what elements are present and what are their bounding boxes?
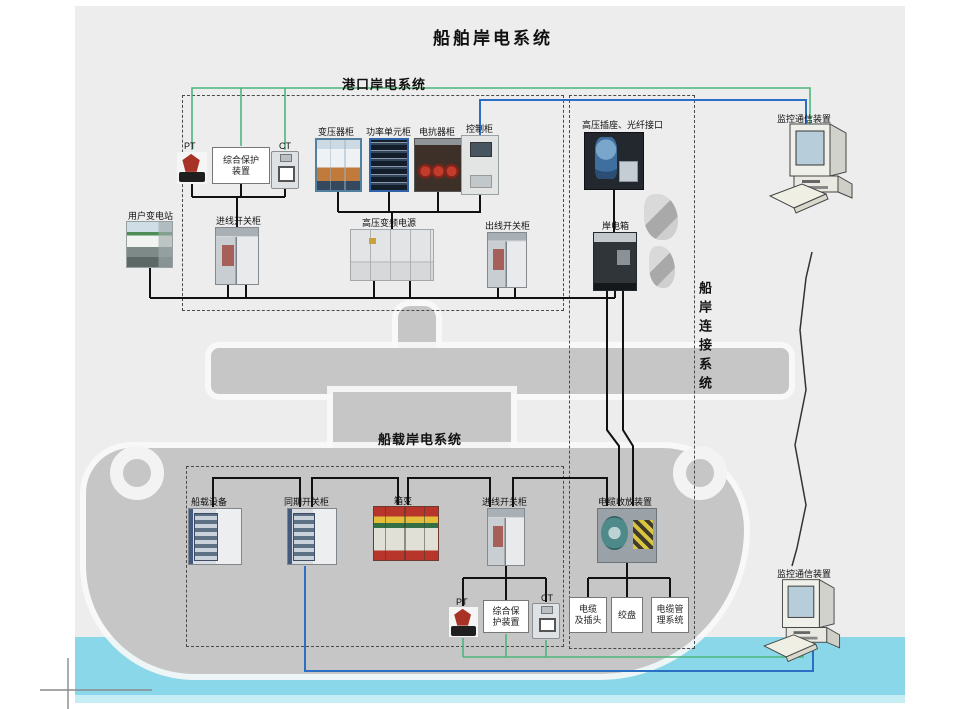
cable-mgmt-line2: 理系统 bbox=[656, 615, 683, 626]
ship-system-title: 船载岸电系统 bbox=[378, 429, 462, 448]
box-transformer-label: 箱变 bbox=[394, 496, 412, 506]
sync-switch-cabinet-label: 同期开关柜 bbox=[284, 497, 329, 507]
ship-incoming-switch-cabinet-image bbox=[487, 508, 525, 566]
cable-mgmt-line1: 电缆管 bbox=[656, 604, 683, 615]
winch-box: 绞盘 bbox=[611, 597, 643, 633]
protection-bottom-line1: 综合保 bbox=[492, 606, 519, 617]
connection-system-title: 船岸连接系统 bbox=[695, 281, 714, 395]
incoming-switch-cabinet-label: 进线开关柜 bbox=[216, 216, 261, 226]
hv-vfd-power-label: 高压变频电源 bbox=[362, 218, 416, 228]
reactor-cabinet-image bbox=[414, 138, 463, 192]
outgoing-switch-cabinet-label: 出线开关柜 bbox=[485, 221, 530, 231]
computer-icon bbox=[760, 576, 852, 668]
hv-socket-fiber-label: 高压插座、光纤接口 bbox=[582, 120, 663, 130]
protection-top-line2: 装置 bbox=[232, 166, 250, 177]
monitoring-computer-bottom bbox=[760, 576, 852, 673]
diagram-canvas: 船舶岸电系统 港口岸电系统 船载岸电系统 船岸连接系统 bbox=[0, 0, 968, 709]
hv-vfd-power-image bbox=[350, 229, 434, 281]
transformer-cabinet-label: 变压器柜 bbox=[318, 127, 354, 137]
cable-mgmt-box: 电缆管 理系统 bbox=[651, 597, 689, 633]
monitoring-device-bottom-label: 监控通信装置 bbox=[777, 569, 831, 579]
cable-reel-device-label: 电缆收放装置 bbox=[598, 497, 652, 507]
pt-bottom-image bbox=[449, 607, 478, 637]
protection-top-line1: 综合保护 bbox=[223, 155, 259, 166]
pt-bottom-label: PT bbox=[456, 597, 468, 607]
transformer-cabinet-image bbox=[315, 138, 362, 192]
winch-label: 绞盘 bbox=[618, 610, 636, 621]
shore-power-box-image bbox=[593, 232, 637, 291]
cable-plug-line1: 电缆 bbox=[579, 604, 597, 615]
ship-incoming-switch-cabinet-label: 进线开关柜 bbox=[482, 497, 527, 507]
shore-power-box-label: 岸电箱 bbox=[602, 221, 629, 231]
ct-bottom-label: CT bbox=[541, 593, 553, 603]
box-transformer-image bbox=[373, 506, 439, 561]
control-cabinet-label: 控制柜 bbox=[466, 124, 493, 134]
page-title: 船舶岸电系统 bbox=[433, 24, 553, 49]
hv-socket-fiber-image bbox=[584, 132, 644, 190]
pt-top-image bbox=[177, 152, 207, 184]
protection-device-bottom-box: 综合保 护装置 bbox=[483, 600, 529, 633]
protection-device-top-box: 综合保护 装置 bbox=[212, 147, 270, 184]
control-cabinet-image bbox=[461, 135, 499, 195]
ct-top-label: CT bbox=[279, 141, 291, 151]
cable-plug-line2: 及插头 bbox=[574, 615, 601, 626]
cable-plug-box: 电缆 及插头 bbox=[569, 597, 607, 633]
shipboard-equipment-image bbox=[188, 508, 242, 565]
incoming-switch-cabinet-image bbox=[215, 227, 259, 285]
cable-reel-device-image bbox=[597, 508, 657, 563]
monitoring-device-top-label: 监控通信装置 bbox=[777, 114, 831, 124]
outgoing-switch-cabinet-image bbox=[487, 232, 527, 288]
shipboard-equipment-label: 船载设备 bbox=[191, 497, 227, 507]
protection-bottom-line2: 护装置 bbox=[492, 617, 519, 628]
user-substation-label: 用户变电站 bbox=[128, 211, 173, 221]
power-unit-cabinet-image bbox=[369, 138, 409, 192]
porthole-left bbox=[110, 446, 164, 500]
port-system-title: 港口岸电系统 bbox=[342, 74, 426, 93]
reactor-cabinet-label: 电抗器柜 bbox=[419, 127, 455, 137]
monitoring-computer-top bbox=[768, 120, 863, 225]
power-unit-cabinet-label: 功率单元柜 bbox=[366, 127, 411, 137]
water-strip-light bbox=[75, 695, 905, 703]
pt-top-label: PT bbox=[184, 141, 196, 151]
computer-icon bbox=[768, 120, 863, 220]
ct-bottom-image bbox=[532, 603, 560, 639]
sync-switch-cabinet-image bbox=[287, 508, 337, 565]
ct-top-image bbox=[271, 151, 299, 189]
user-substation-image bbox=[126, 221, 173, 268]
